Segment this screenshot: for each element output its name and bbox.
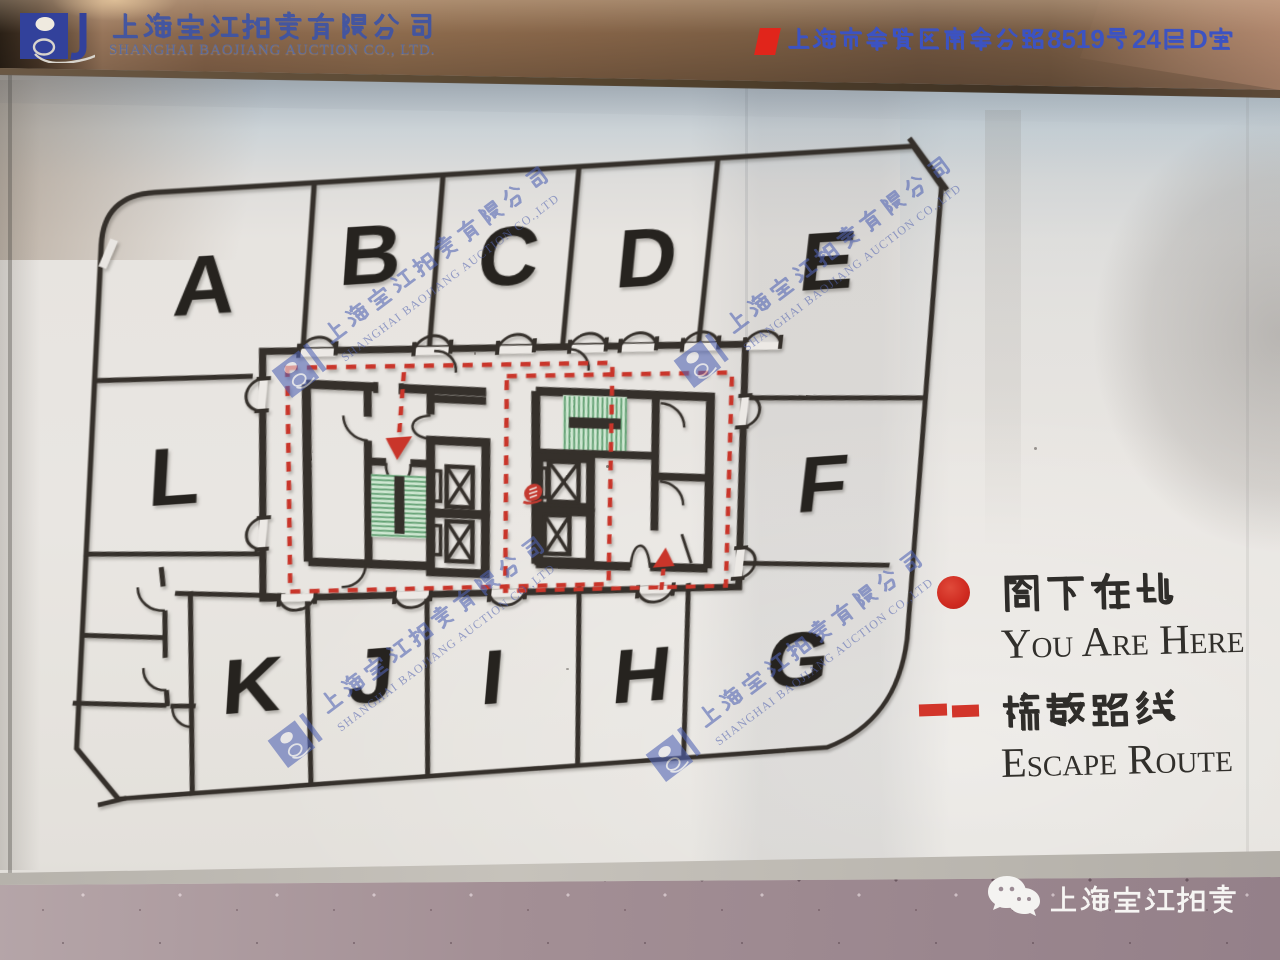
svg-text:8519: 8519 [1047,24,1105,54]
svg-text:F: F [793,438,853,531]
svg-text:D: D [612,208,682,306]
svg-text:H: H [608,629,675,720]
svg-text:L: L [146,429,203,524]
svg-text:24: 24 [1132,24,1161,54]
svg-text:I: I [478,633,508,722]
svg-text:K: K [220,639,285,732]
svg-text:A: A [171,235,239,334]
svg-text:D: D [1189,24,1208,54]
